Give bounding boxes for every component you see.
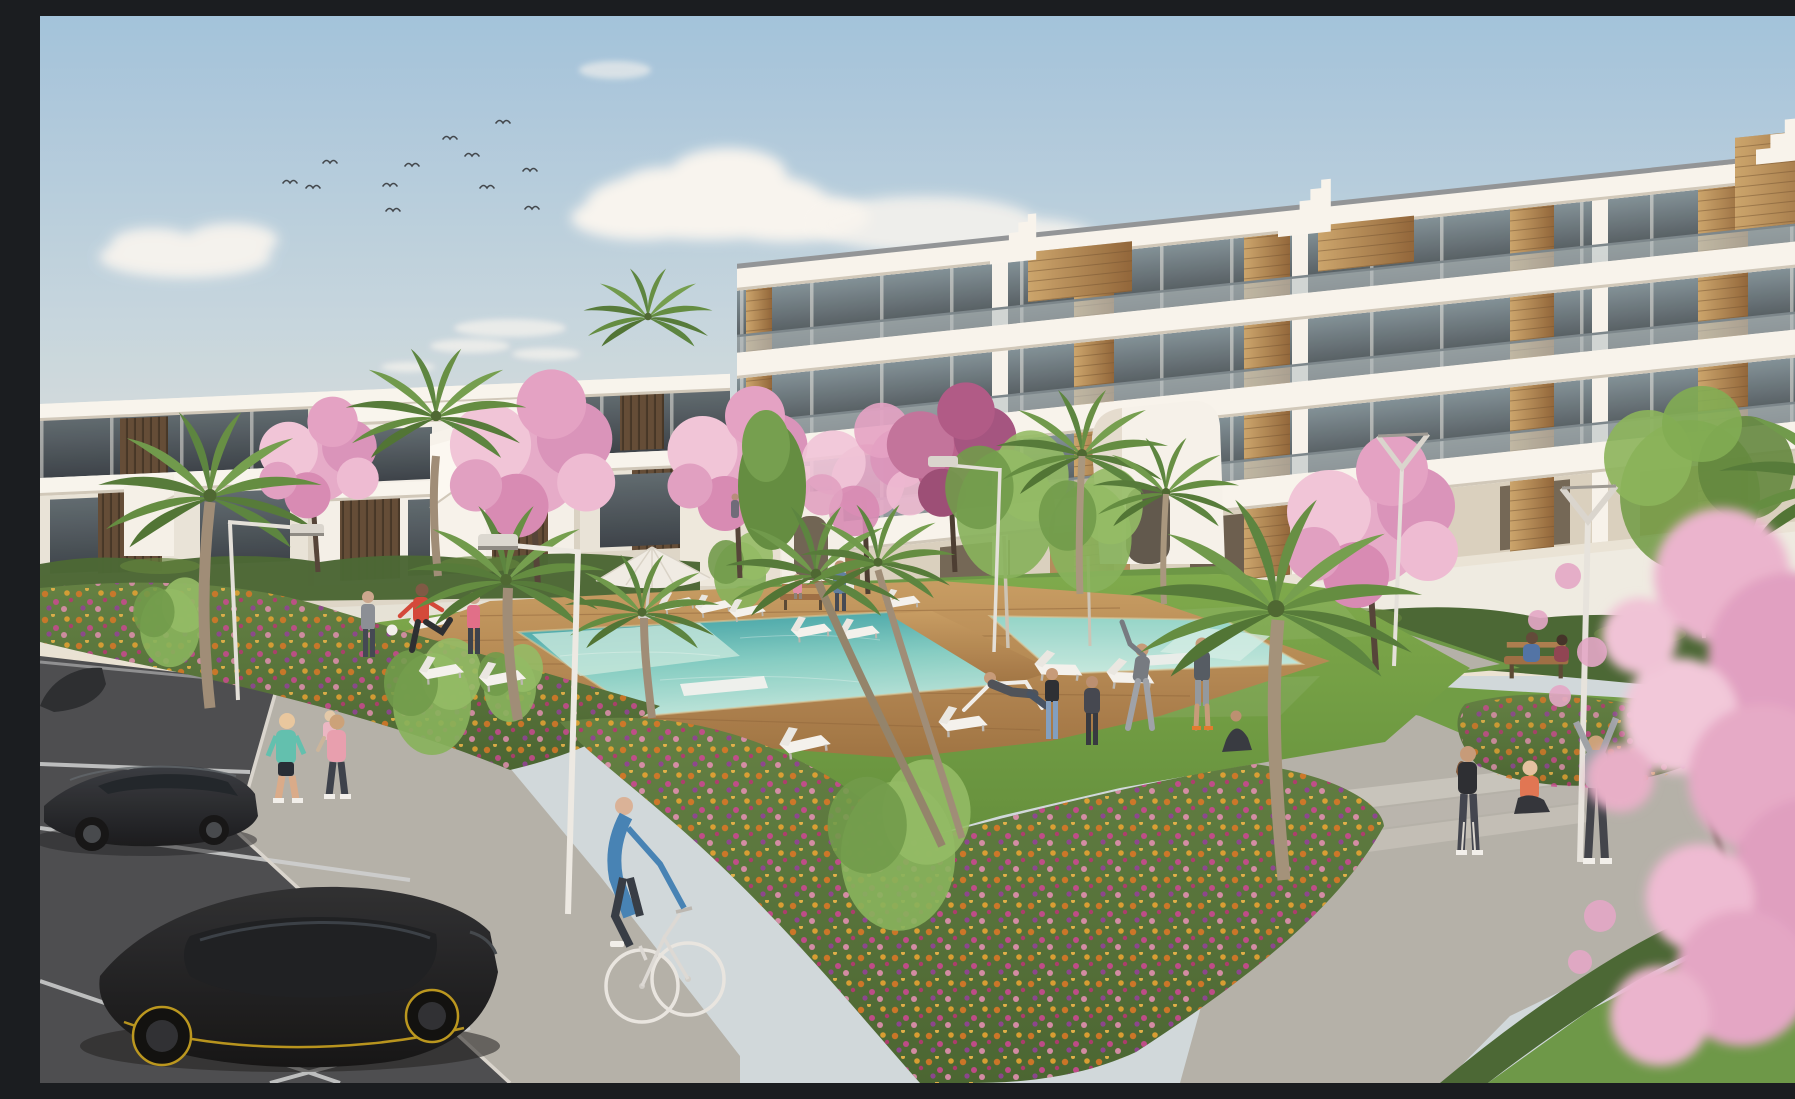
scene-canvas <box>40 16 1795 1083</box>
architectural-render: Architectural rendering of a modern whit… <box>40 16 1795 1083</box>
warm-light-overlay <box>40 16 1795 1083</box>
